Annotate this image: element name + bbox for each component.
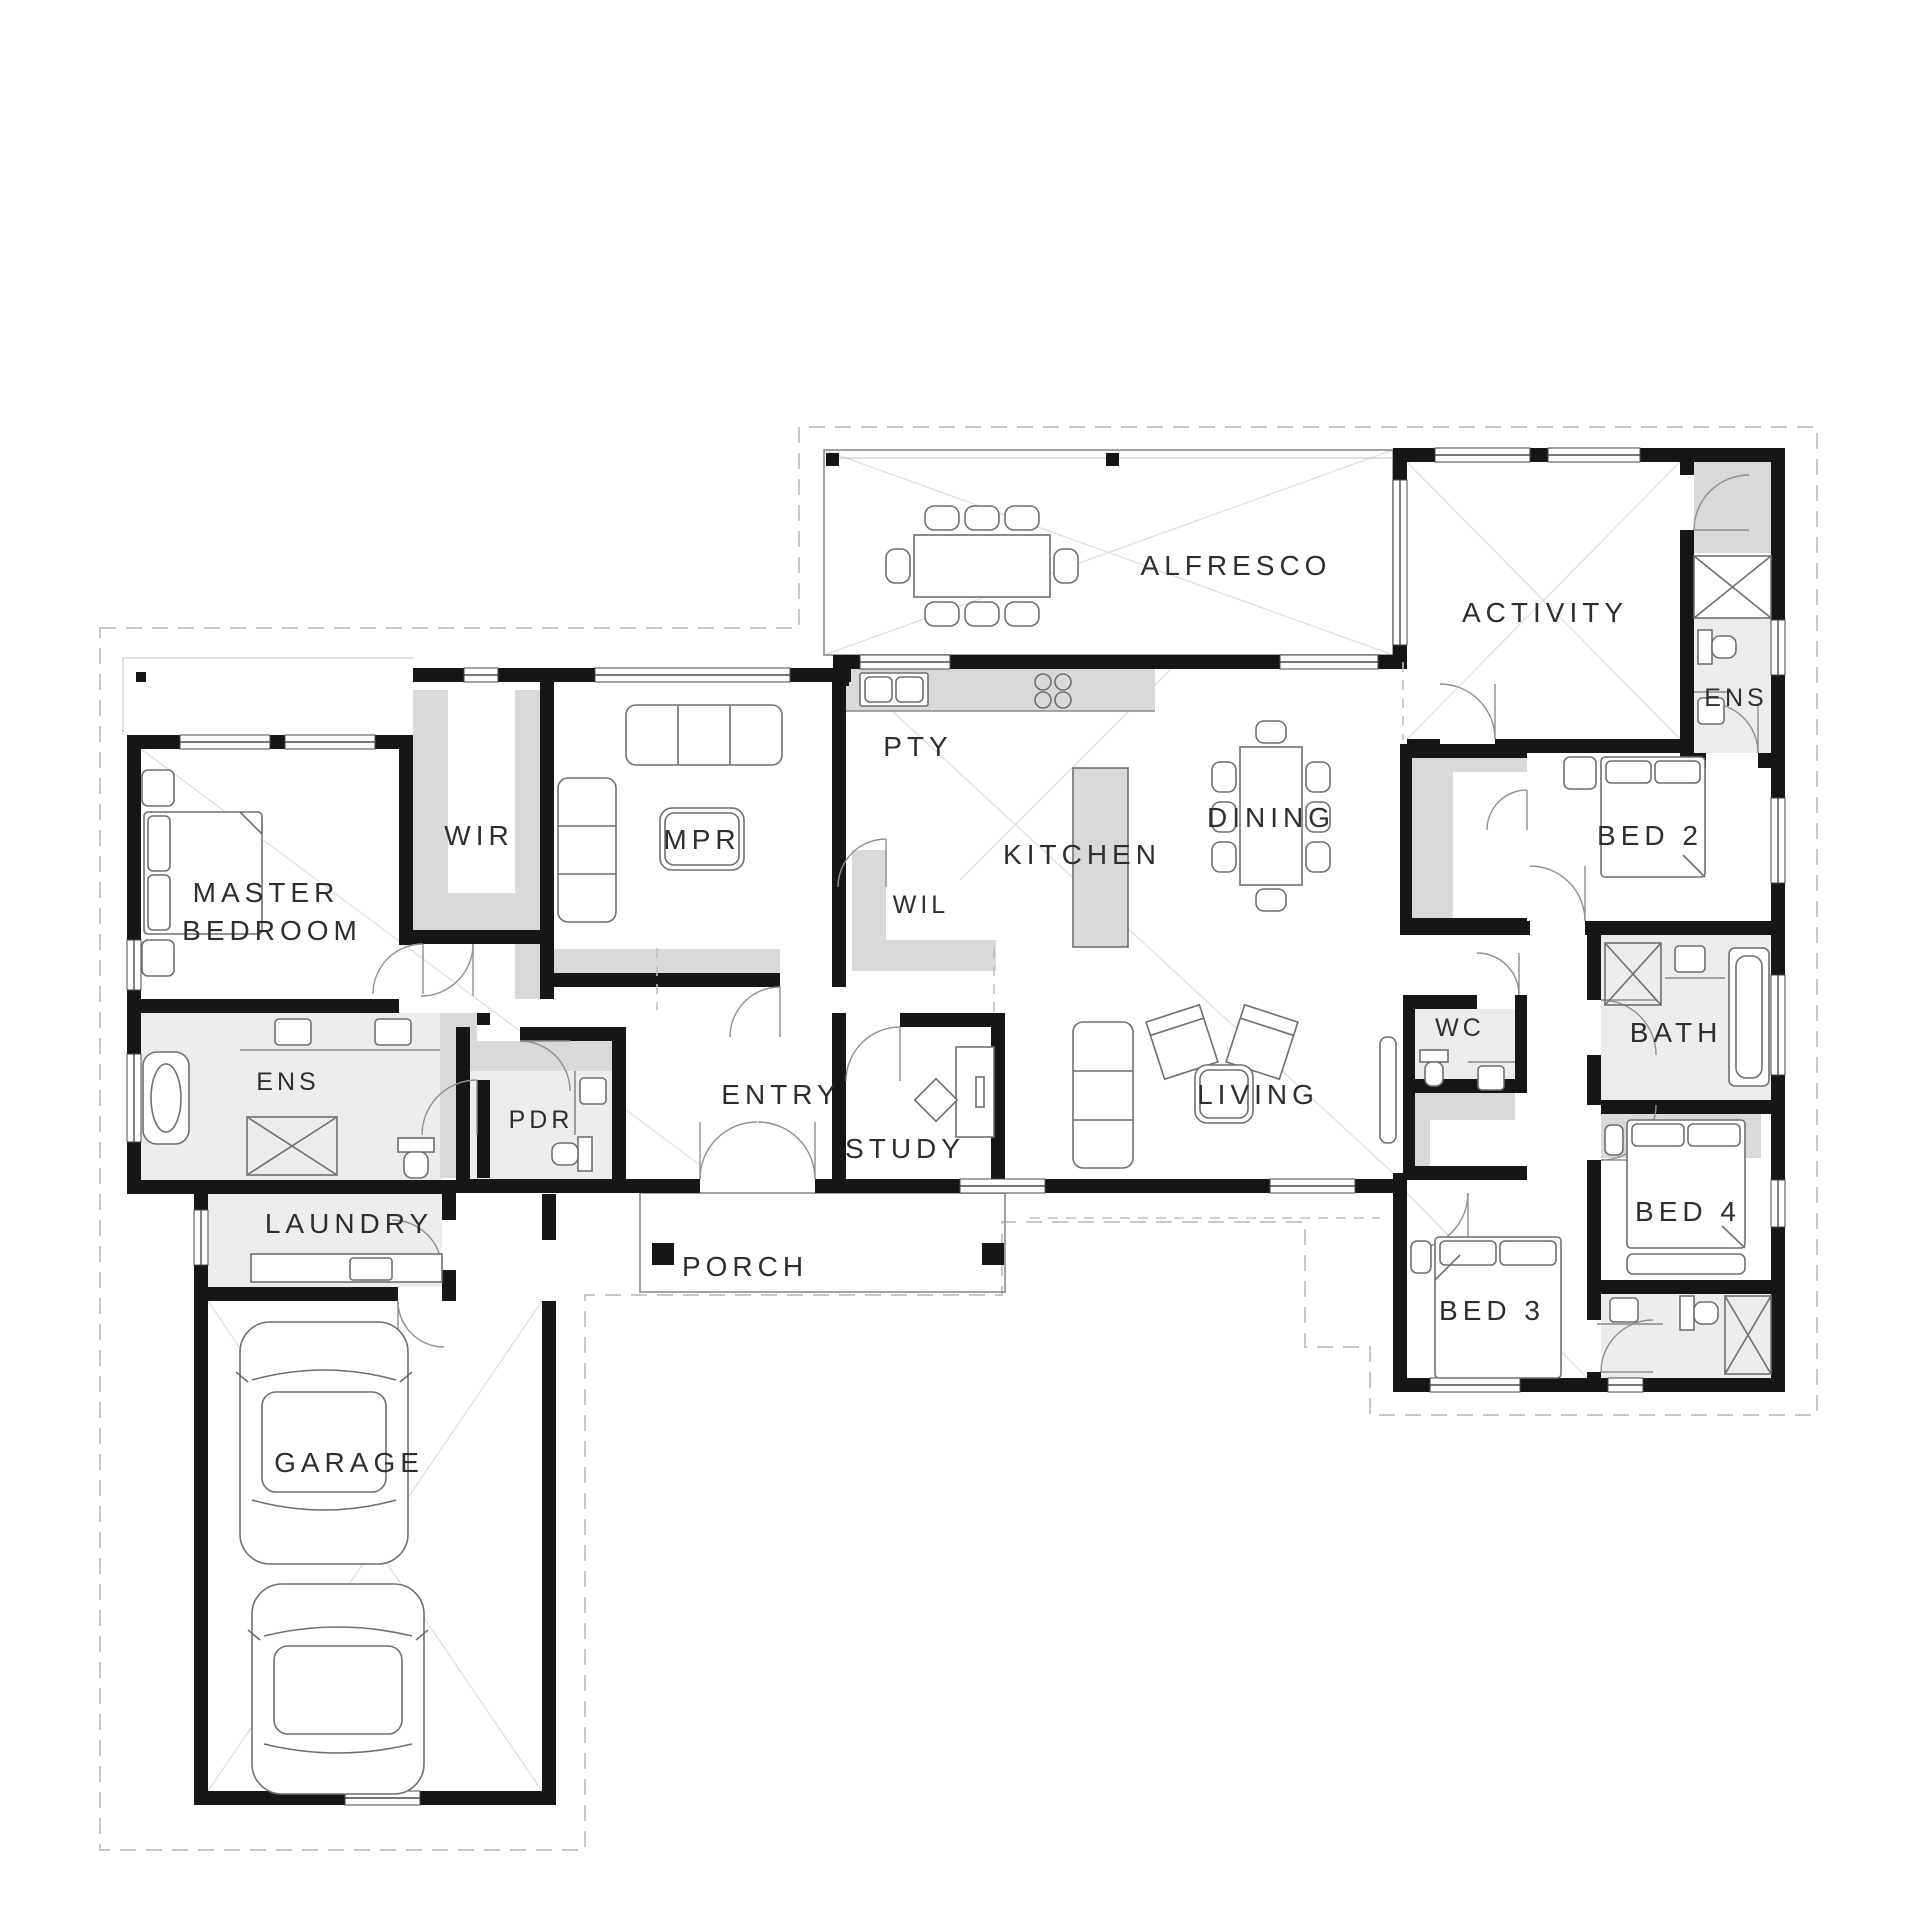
bathtub (143, 1052, 189, 1144)
room-label-entry: ENTRY (721, 1079, 840, 1110)
window-laundry-west (194, 1210, 208, 1265)
room-label-dining: DINING (1207, 802, 1335, 833)
bed2 (1564, 757, 1705, 877)
wir-robe-bottom (413, 893, 540, 930)
porch-column-right (982, 1243, 1004, 1265)
room-label-wil: WIL (893, 891, 949, 919)
basin (275, 1019, 311, 1045)
room-label-bath: BATH (1630, 1017, 1723, 1048)
door-wir-nook (373, 944, 423, 994)
room-label-study: STUDY (845, 1133, 965, 1164)
room-label-pty: PTY (883, 731, 952, 762)
window-bed3-south (1430, 1378, 1520, 1392)
mpr-sofa-left (558, 778, 616, 922)
wir-robe-left (413, 690, 448, 905)
mpr-sofa-top (626, 705, 782, 765)
window-wir (464, 668, 498, 682)
floor-plan-drawing: MASTER BEDROOM WIR MPR PTY WIL KITCHEN D… (0, 0, 1920, 1920)
eave-marker (136, 672, 146, 682)
toilet-tank (1698, 630, 1712, 664)
toilet-tank (1680, 1296, 1694, 1330)
toilet-tank (578, 1137, 592, 1171)
basin (580, 1078, 606, 1104)
window-ens-master-west (127, 1054, 141, 1142)
toilet-bowl (1425, 1062, 1443, 1086)
window-activity-west (1393, 480, 1407, 645)
mpr-cabinet (554, 949, 780, 973)
toilet-bowl (552, 1143, 578, 1165)
toilet-bowl (1694, 1302, 1718, 1324)
living-sofa (1073, 1022, 1133, 1168)
toilet-tank (398, 1138, 434, 1152)
room-label-laundry: LAUNDRY (265, 1208, 433, 1239)
basin (1675, 946, 1705, 972)
basin (1610, 1298, 1638, 1322)
room-label-master-line2: BEDROOM (182, 915, 362, 946)
ens-activity-robe-zone (1694, 462, 1771, 553)
slider-dining-alfresco (1280, 655, 1378, 669)
room-label-bed2: BED 2 (1597, 820, 1703, 851)
room-label-ens-master: ENS (256, 1068, 319, 1096)
room-label-bed4: BED 4 (1635, 1196, 1741, 1227)
bathtub (1729, 948, 1769, 1086)
kitchen-sink (860, 673, 928, 706)
window-master-north (180, 735, 270, 749)
window-master-west (127, 940, 141, 990)
room-label-garage: GARAGE (274, 1447, 424, 1478)
toilet-bowl (1712, 636, 1736, 658)
window-bath-east (1771, 975, 1785, 1075)
car-2 (248, 1584, 428, 1794)
window-master-north-2 (285, 735, 375, 749)
room-label-ens-activity: ENS (1704, 684, 1767, 712)
porch-column-left (652, 1243, 674, 1265)
room-label-living: LIVING (1197, 1079, 1319, 1110)
door-entry-double (700, 1122, 815, 1179)
study-desk (956, 1047, 994, 1137)
window-ens2-south (1608, 1378, 1643, 1392)
room-label-mpr: MPR (663, 824, 740, 855)
window-mpr (595, 668, 790, 682)
room-label-activity: ACTIVITY (1462, 597, 1628, 628)
wir-robe-right (515, 690, 540, 999)
room-label-kitchen: KITCHEN (1003, 839, 1161, 870)
alfresco-post-right (1106, 453, 1119, 466)
wil-shelf-bottom (852, 940, 996, 971)
room-label-porch: PORCH (682, 1251, 808, 1282)
window-bed4-east (1771, 1180, 1785, 1227)
study-furniture (915, 1047, 994, 1137)
window-bed2-east (1771, 798, 1785, 883)
window-activity-north (1435, 448, 1530, 462)
room-label-wir: WIR (444, 820, 513, 851)
laundry-bench (251, 1254, 442, 1282)
room-label-bed3: BED 3 (1439, 1295, 1545, 1326)
room-label-pdr: PDR (509, 1106, 574, 1134)
toilet-bowl (404, 1152, 428, 1178)
basin (375, 1019, 411, 1045)
slider-kitchen-alfresco (860, 655, 950, 669)
basin (1478, 1066, 1504, 1090)
laundry-fixtures (251, 1254, 442, 1282)
car-1 (236, 1322, 412, 1564)
tv-unit (1380, 1037, 1396, 1143)
room-label-wc: WC (1435, 1014, 1485, 1042)
door-study (846, 1027, 900, 1081)
laundry-sink (350, 1258, 392, 1280)
room-label-master-line1: MASTER (193, 877, 340, 908)
floor-plan-page: MASTER BEDROOM WIR MPR PTY WIL KITCHEN D… (0, 0, 1920, 1920)
door-activity (1440, 684, 1495, 739)
study-chair (915, 1079, 957, 1121)
window-ens-activity-east (1771, 620, 1785, 675)
door-wc (1477, 953, 1519, 995)
bed4-bench (1627, 1254, 1745, 1274)
room-label-alfresco: ALFRESCO (1141, 550, 1332, 581)
toilet-tank (1420, 1050, 1448, 1062)
door-mpr (730, 987, 780, 1037)
door-bed2 (1530, 866, 1585, 921)
study-monitor (976, 1077, 984, 1107)
window-living-south (1270, 1179, 1355, 1193)
alfresco-table (886, 506, 1078, 626)
door-master (421, 944, 473, 996)
alfresco-post-left (826, 453, 839, 466)
window-study-south (960, 1179, 1045, 1193)
window-activity-north-2 (1548, 448, 1640, 462)
